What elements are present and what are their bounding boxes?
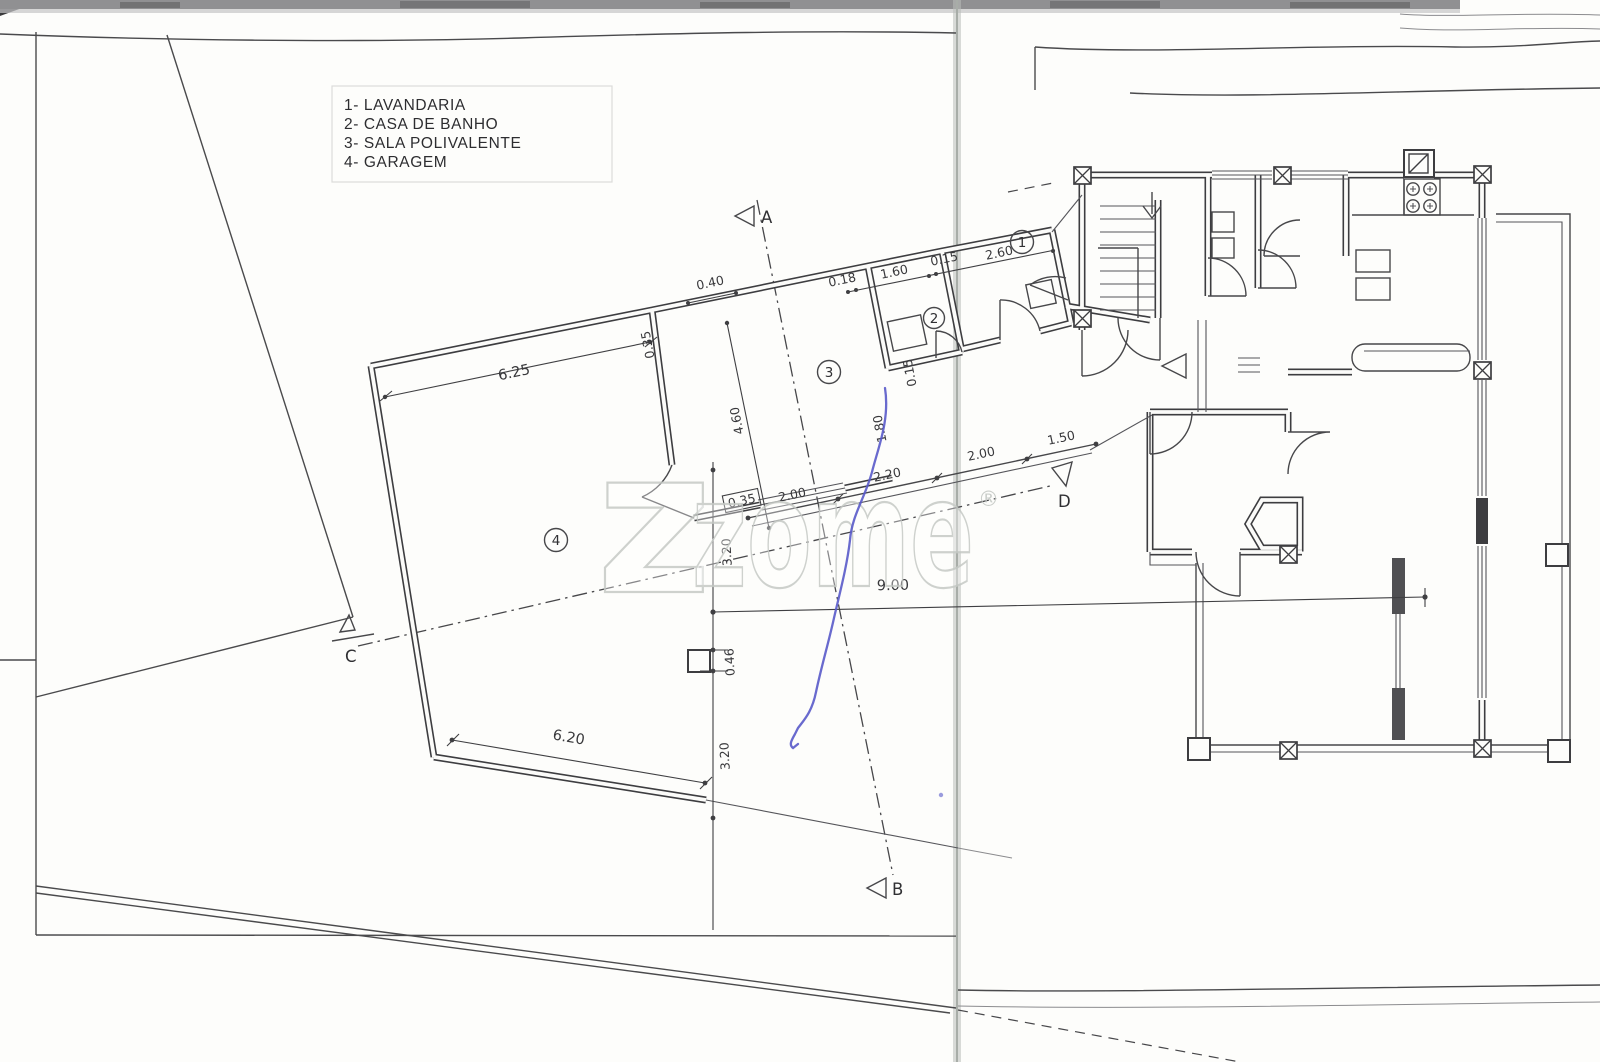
section-marker-a: A (735, 206, 773, 227)
room-number-3: 3 (825, 365, 834, 381)
scanned-floor-plan: 6.25 0.40 0.35 4.60 0.18 1.60 0.15 2.60 … (0, 0, 1600, 1062)
chimney (1404, 150, 1434, 177)
section-marker-c: C (332, 615, 374, 666)
section-marker-b: B (867, 878, 903, 899)
dim-door-top: 0.40 (695, 272, 725, 292)
scan-top-band (0, 0, 1600, 30)
staircase (1098, 192, 1161, 318)
section-letter-b: B (892, 880, 903, 899)
watermark-registered: ® (978, 487, 999, 511)
room-number-4: 4 (552, 533, 561, 549)
dim-yard-b: 3.20 (716, 742, 732, 771)
watermark: z zome ® (596, 407, 999, 640)
room-number-2: 2 (930, 311, 939, 327)
dim-walk-d: 1.50 (1046, 427, 1076, 447)
kitchen-stove (1404, 179, 1440, 215)
watermark-text: zome (692, 448, 974, 622)
kitchen-counter (1352, 179, 1474, 300)
dim-pillar: 0.46 (721, 648, 737, 677)
section-marker-d: D (1052, 462, 1072, 511)
legend-item-4: 4- GARAGEM (344, 154, 447, 171)
legend-item-3: 3- SALA POLIVALENTE (344, 135, 521, 152)
legend: 1- LAVANDARIA 2- CASA DE BANHO 3- SALA P… (332, 86, 612, 182)
dim-room2-depth: 1.80 (870, 414, 890, 444)
legend-item-1: 1- LAVANDARIA (344, 97, 466, 114)
dim-garage-width: 6.25 (497, 362, 532, 384)
interior-details (887, 182, 1470, 412)
dim-garage-bottom: 6.20 (551, 727, 586, 748)
section-letter-a: A (761, 208, 773, 227)
legend-item-2: 2- CASA DE BANHO (344, 116, 498, 133)
room-number-1: 1 (1018, 235, 1027, 251)
section-letter-d: D (1058, 492, 1071, 511)
dim-room3-depth: 4.60 (727, 406, 747, 436)
section-letter-c: C (345, 647, 357, 666)
